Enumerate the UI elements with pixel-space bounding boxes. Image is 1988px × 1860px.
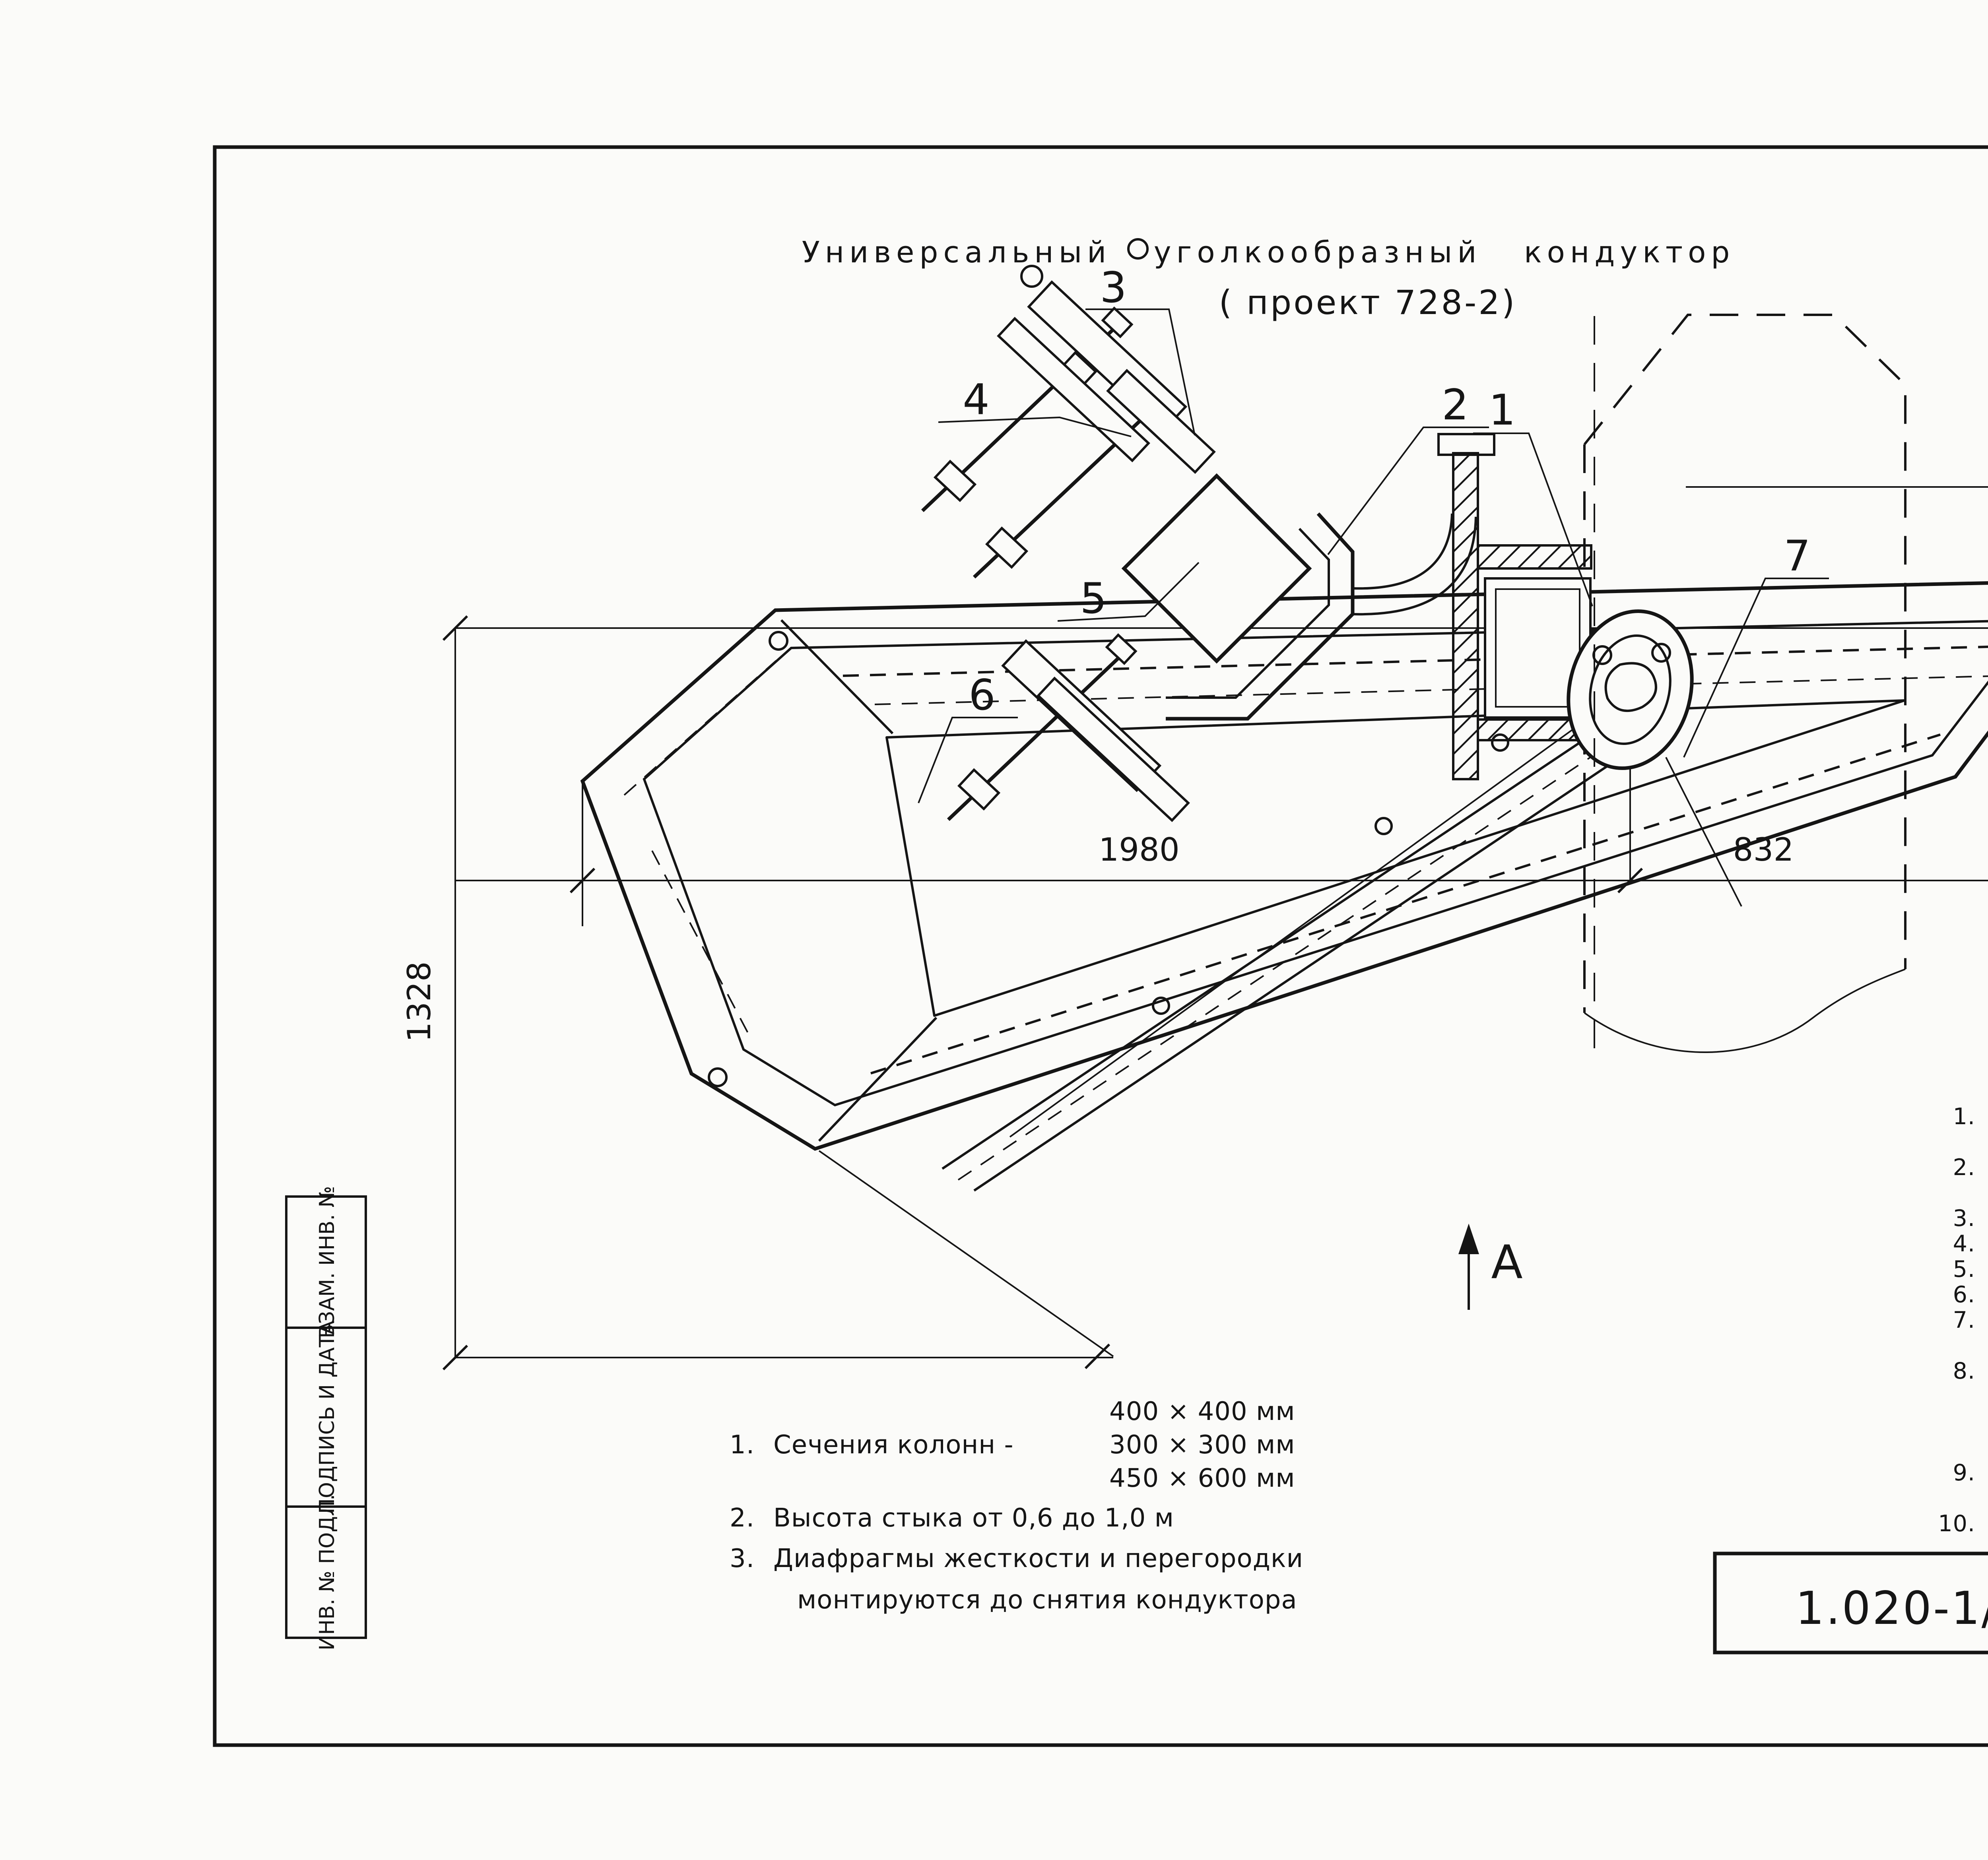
callout-1: 1: [1489, 386, 1515, 434]
view-marker-letter: А: [1491, 1235, 1522, 1289]
diagonal-edge-1: [942, 704, 1638, 1169]
drawing-subtitle: ( проект 728-2): [1219, 283, 1516, 322]
note-3-num: 3.: [730, 1544, 755, 1573]
note-1-label: Сечения колонн -: [773, 1430, 1014, 1460]
clamp-plate-2: [1038, 678, 1188, 820]
legend-num-9: 9.: [1953, 1460, 1975, 1486]
ext-line-bottom-corner: [819, 1151, 1113, 1356]
legend-num-2: 2.: [1953, 1154, 1975, 1181]
break-line: [1584, 969, 1905, 1052]
node-tail-line: [1666, 757, 1741, 906]
note-2-text: Высота стыка от 0,6 до 1,0 м: [773, 1503, 1174, 1533]
note-2-num: 2.: [730, 1503, 755, 1533]
legend-list: 1. Прямоугольная стойка кондуктора 2. Пр…: [1938, 1104, 1988, 1537]
bolt-hole-1: [770, 632, 787, 650]
note-3-line-1: Диафрагмы жесткости и перегородки: [773, 1544, 1303, 1573]
legend-num-7: 7.: [1953, 1307, 1975, 1333]
leader-7: [1684, 578, 1829, 757]
diagonal-dashed-center: [958, 715, 1654, 1180]
legend-num-10: 10.: [1938, 1511, 1975, 1537]
callout-7: 7: [1784, 531, 1810, 580]
legend-num-5: 5.: [1953, 1256, 1975, 1282]
legend-num-6: 6.: [1953, 1282, 1975, 1308]
callout-3: 3: [1100, 263, 1126, 312]
note-1-size-2: 300 × 300 мм: [1109, 1430, 1295, 1460]
callout-2: 2: [1442, 380, 1468, 429]
legend-num-8: 8.: [1953, 1358, 1975, 1384]
mounted-column-section: [1124, 476, 1309, 661]
bolt-hole-4: [1376, 818, 1392, 834]
note-3-line-2: монтируются до снятия кондуктора: [797, 1585, 1297, 1615]
view-arrow-head: [1458, 1224, 1479, 1254]
callout-5: 5: [1080, 574, 1107, 623]
note-1-size-3: 450 × 600 мм: [1109, 1464, 1295, 1493]
dim-832: 832: [1733, 831, 1794, 868]
dim-1328: 1328: [401, 961, 438, 1042]
post-hatched-bar: [1453, 453, 1478, 779]
view-marker: [1458, 1224, 1479, 1310]
drawing-canvas: 85 ВЗАМ. ИНВ. № ПОДПИСЬ И ДАТА ИНВ. № ПО…: [0, 0, 1988, 1860]
bolt-hole-2: [709, 1069, 726, 1086]
legend-num-1: 1.: [1953, 1104, 1975, 1130]
legend-num-4: 4.: [1953, 1231, 1975, 1257]
dim-1980: 1980: [1099, 831, 1180, 868]
clamp-strap-1: [1353, 514, 1452, 588]
frame-fold-top: [781, 620, 893, 733]
post-cap: [1439, 434, 1494, 455]
callout-6: 6: [969, 671, 995, 720]
notes: 400 × 400 мм 1. Сечения колонн - 300 × 3…: [730, 1397, 1303, 1615]
stamp-label-vzam: ВЗАМ. ИНВ. №: [315, 1186, 339, 1338]
frame-dashed-bottom-rail: [871, 735, 1940, 1073]
diagonal-edge-2: [974, 725, 1668, 1191]
callout-4: 4: [963, 375, 989, 424]
stamp-label-podpis: ПОДПИСЬ И ДАТА: [315, 1321, 339, 1514]
diagonal-member: [942, 694, 1668, 1191]
legend-num-3: 3.: [1953, 1205, 1975, 1232]
note-1-size-1: 400 × 400 мм: [1109, 1397, 1295, 1426]
drawing-title: Универсальный уголкообразный кондуктор: [802, 235, 1735, 270]
note-1-num: 1.: [730, 1430, 755, 1460]
document-number: 1.020-1/87. 0-8-К8: [1796, 1582, 1988, 1635]
drawing-sheet: 85 ВЗАМ. ИНВ. № ПОДПИСЬ И ДАТА ИНВ. № ПО…: [0, 0, 1988, 1860]
stamp-label-inv: ИНВ. № ПОДЛ.: [315, 1494, 339, 1651]
